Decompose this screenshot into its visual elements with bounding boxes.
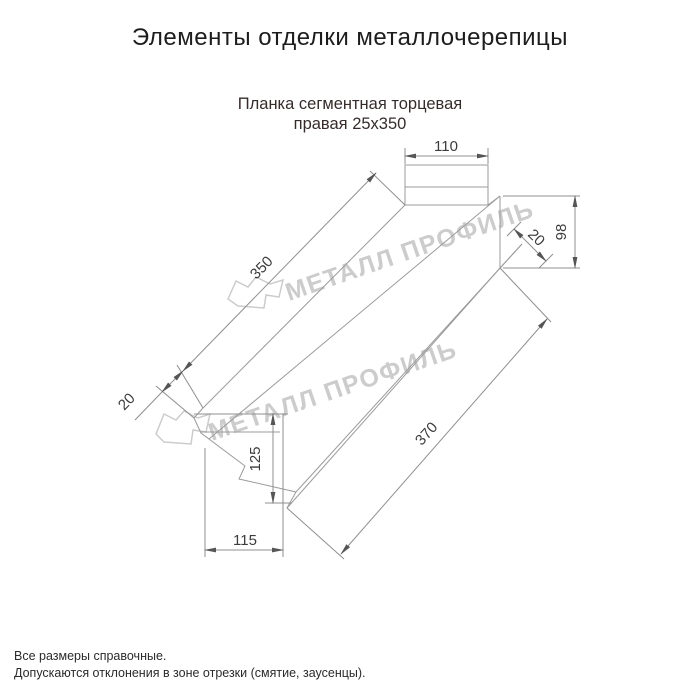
extension-line [500, 268, 551, 322]
extension-line [287, 508, 344, 559]
dim-98-label: 98 [553, 224, 570, 241]
product-drawing-page: Элементы отделки металлочерепицы Планка … [0, 0, 700, 700]
dim-125-label: 125 [247, 446, 264, 471]
footer-note-1: Все размеры справочные. [14, 648, 366, 665]
technical-drawing: МЕТАЛЛ ПРОФИЛЬ МЕТАЛЛ ПРОФИЛЬ [0, 0, 700, 700]
footer-note-2: Допускаются отклонения в зоне отрезки (с… [14, 665, 366, 682]
dim-350-label: 350 [247, 253, 277, 283]
extension-line [156, 386, 194, 418]
extension-line [370, 171, 405, 205]
footer-notes: Все размеры справочные. Допускаются откл… [14, 648, 366, 682]
top-flange-face [405, 165, 488, 205]
dim-115-label: 115 [233, 532, 257, 549]
extension-line [177, 365, 203, 408]
metal-profile-logo-icon [228, 277, 283, 308]
dimension-line-overshoot [135, 392, 162, 420]
dim-20-right-label: 20 [524, 226, 548, 250]
dimension-370: 370 [287, 268, 551, 559]
dim-20-left-label: 20 [115, 390, 139, 414]
watermark-group-upper: МЕТАЛЛ ПРОФИЛЬ [228, 195, 538, 308]
dimension-line-20 [162, 371, 183, 392]
dimension-110: 110 [405, 138, 488, 164]
dimension-20-right: 20 [507, 222, 553, 268]
right-end-top-connector [488, 196, 500, 205]
dim-110-label: 110 [434, 138, 458, 155]
right-end-fold [500, 244, 522, 268]
metal-profile-logo-icon [156, 411, 210, 444]
